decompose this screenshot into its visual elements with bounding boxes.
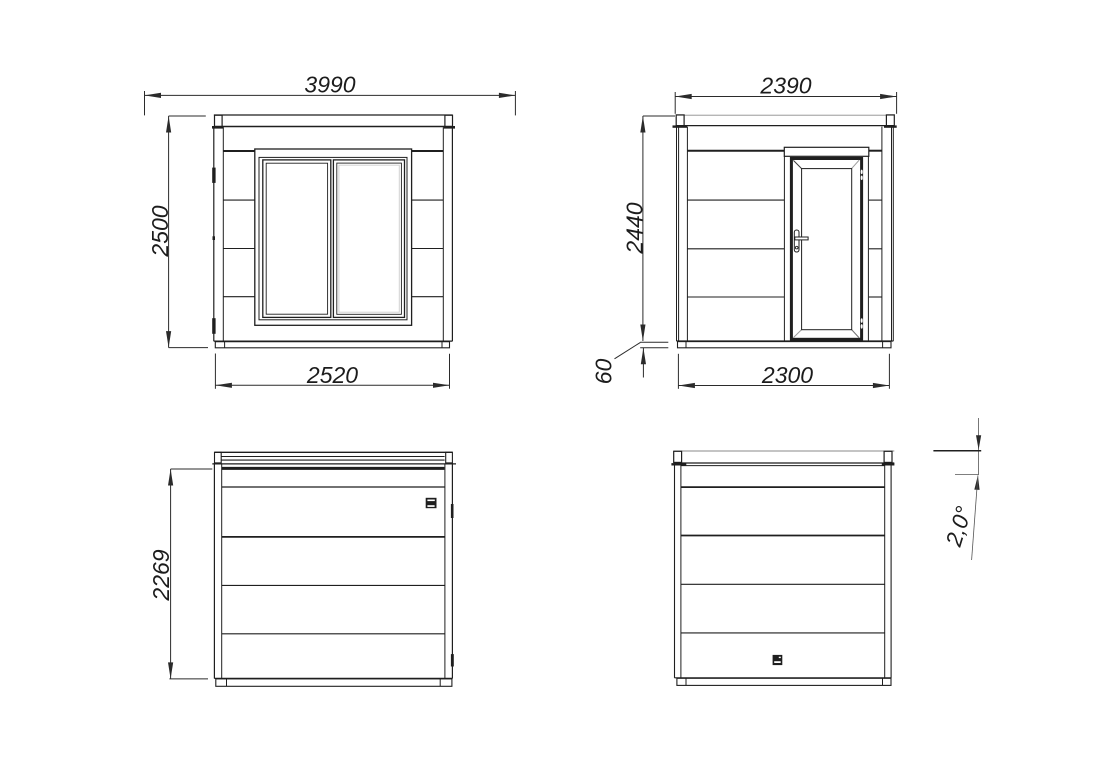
svg-text:2390: 2390 (759, 73, 811, 99)
svg-text:2520: 2520 (306, 362, 358, 388)
svg-text:2500: 2500 (147, 205, 173, 257)
svg-text:60: 60 (591, 359, 617, 385)
svg-text:2300: 2300 (761, 362, 813, 388)
svg-text:2269: 2269 (148, 549, 174, 601)
svg-text:2440: 2440 (621, 202, 647, 254)
svg-text:3990: 3990 (304, 72, 355, 98)
